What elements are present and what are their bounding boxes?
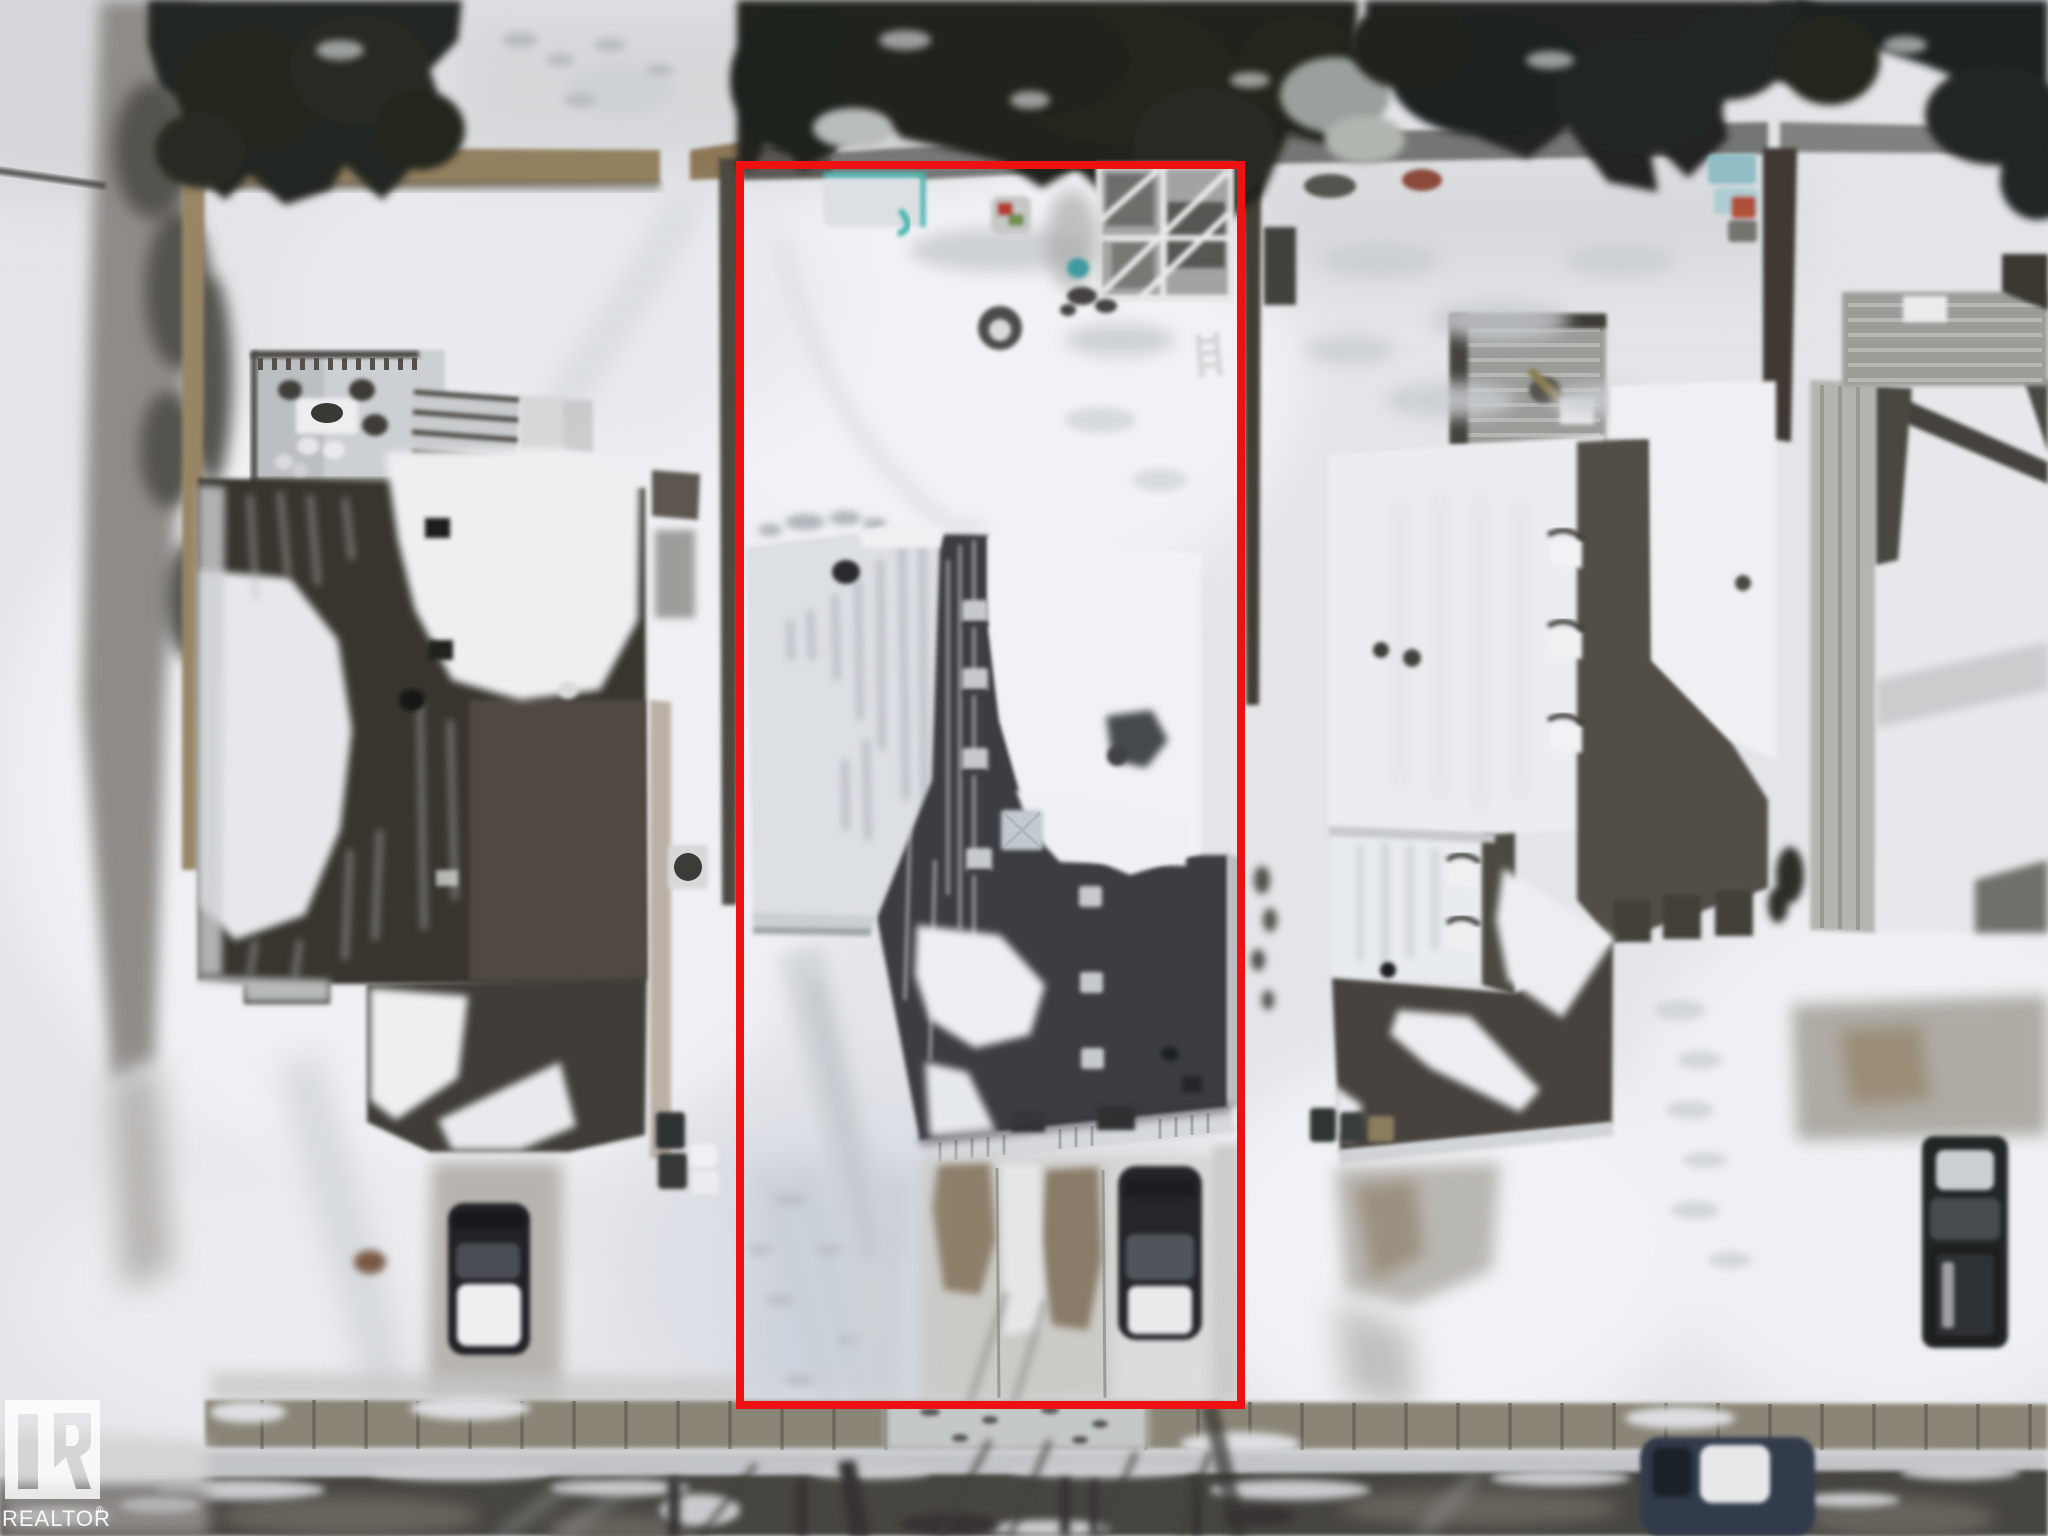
svg-text:®: ® bbox=[96, 1505, 104, 1516]
svg-text:REALTOR: REALTOR bbox=[2, 1506, 111, 1531]
